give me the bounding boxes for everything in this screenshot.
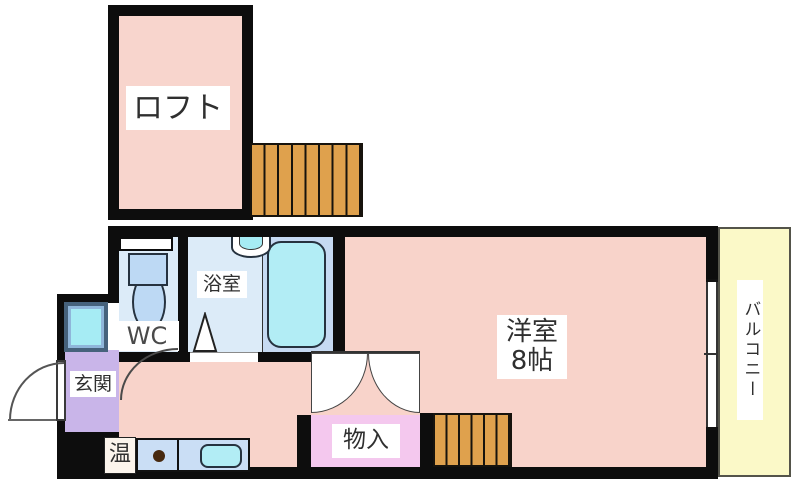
window-cap-top [706,279,718,282]
genkan-label: 玄関 [70,371,116,397]
toilet-tank-icon [128,253,168,286]
western-room-name: 洋室 [506,318,558,347]
balcony-label: バルコニー [737,280,763,420]
wall-bathroom-right [333,226,345,354]
wall-right-upper [706,226,718,279]
wall-right-lower [706,430,718,479]
bathroom-door-icon [192,312,218,353]
wc-window-icon [119,237,173,251]
wall-wc-bathroom [178,231,188,362]
bathroom-door-opening [190,352,258,362]
wall-left-step [57,294,119,303]
kitchen-sink-icon [200,444,242,468]
closet-label: 物入 [332,424,400,458]
stove-burner-icon [153,450,165,462]
wall-closet-left [297,415,311,479]
entrance-door-closed-line [8,419,56,421]
wc-label: WC [115,321,179,351]
bathtub-icon [267,241,326,348]
bathroom-label: 浴室 [197,271,247,298]
wall-left-upper [108,226,119,302]
window-cap-bottom [706,427,718,430]
water-heater-label: 温 [104,437,136,474]
window-center-tick [704,353,718,355]
loft-stairs-icon [250,143,363,217]
wall-top [108,226,718,237]
sink-basin-icon [239,237,263,250]
room-stairs-icon [433,413,512,467]
washing-machine-icon [68,306,104,348]
western-room-size: 8帖 [511,347,554,376]
kitchen-counter-divider [177,438,179,472]
entrance-door-swing-icon [9,362,64,420]
wall-closet-right [420,413,433,479]
western-room-label: 洋室 8帖 [497,315,567,379]
floor-plan: ロフト WC 浴室 玄関 温 物入 洋室 8 [0,0,800,485]
loft-label: ロフト [126,86,230,130]
